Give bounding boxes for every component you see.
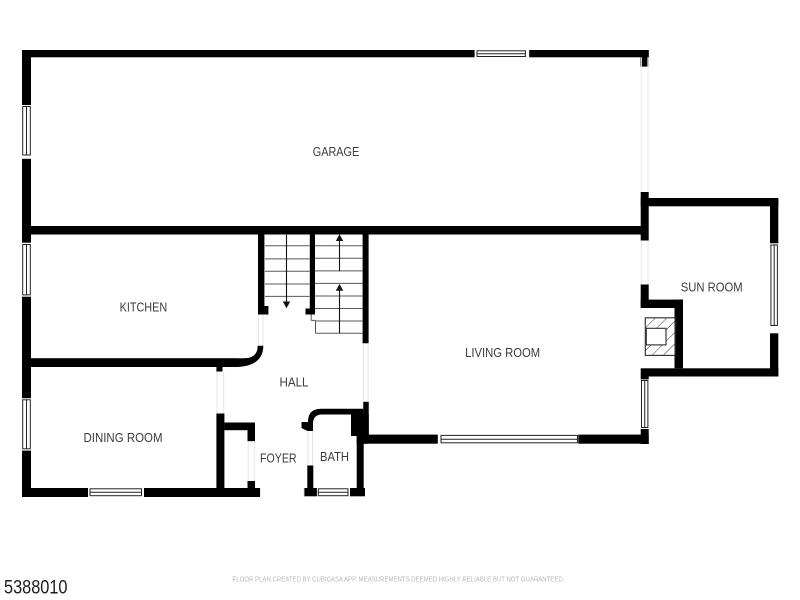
svg-text:DINING ROOM: DINING ROOM: [84, 430, 163, 445]
svg-text:5388010: 5388010: [4, 577, 68, 599]
svg-text:FLOOR PLAN CREATED BY CUBICASA: FLOOR PLAN CREATED BY CUBICASA APP. MEAS…: [233, 575, 565, 584]
svg-text:FOYER: FOYER: [260, 450, 297, 465]
svg-text:LIVING ROOM: LIVING ROOM: [465, 345, 540, 360]
svg-text:SUN ROOM: SUN ROOM: [681, 279, 743, 294]
svg-text:KITCHEN: KITCHEN: [120, 299, 168, 314]
svg-text:HALL: HALL: [280, 374, 309, 389]
svg-text:BATH: BATH: [320, 449, 349, 464]
svg-text:GARAGE: GARAGE: [313, 144, 360, 159]
